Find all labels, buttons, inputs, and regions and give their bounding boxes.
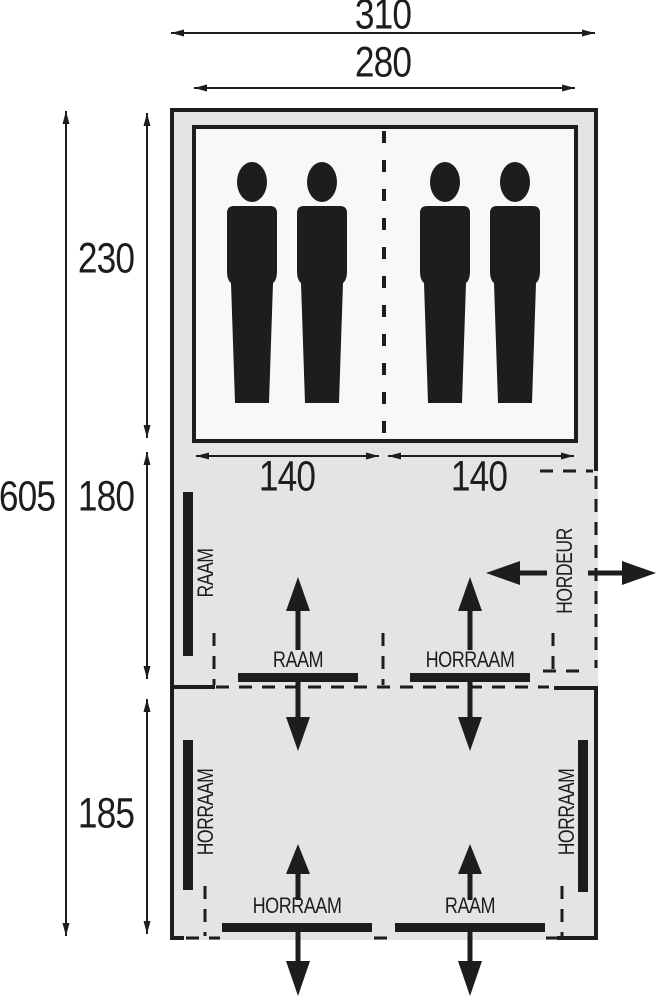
tent-floorplan-diagram: 310 280 605 230 180 185 140 140 RAAM HOR… [0,0,658,1000]
dimension-line-overall-depth [63,111,70,936]
arrow-down-bottom-left-icon [286,932,310,996]
label-mesh-window-left-wall: HORRAAM [195,769,217,856]
dim-label-front-depth: 185 [78,793,134,836]
dim-label-cabin-right-width: 140 [451,456,507,499]
window-bar-bottom-left [222,923,372,932]
door-arrow-out-icon [588,561,656,585]
label-mesh-window-mid: HORRAAM [426,649,515,671]
window-bar-left-wall-front [183,740,193,890]
window-bar-mid-left [238,673,358,682]
label-window-left-wall: RAAM [195,549,217,598]
window-bar-bottom-right [395,923,545,932]
dim-label-cabin-left-width: 140 [259,456,315,499]
label-window-mid: RAAM [273,649,323,671]
dim-label-living-depth: 180 [78,476,134,519]
dim-label-inner-width: 280 [355,42,411,85]
dim-label-cabin-depth: 230 [78,238,134,281]
label-mesh-window-right-wall: HORRAAM [556,769,578,856]
window-bar-right-wall-front [578,740,588,892]
dimension-line-front-depth [144,699,151,934]
dimension-line-cabin-depth [144,113,151,438]
window-bar-left-wall [183,492,193,656]
label-window-bottom: RAAM [445,895,495,917]
dim-label-overall-depth: 605 [0,476,55,519]
label-mesh-window-bottom: HORRAAM [253,895,342,917]
arrow-down-bottom-right-icon [458,932,482,996]
dim-label-overall-width: 310 [355,0,411,37]
window-bar-mid-right [410,673,530,682]
label-mesh-door: HORDEUR [554,528,576,614]
dimension-line-living-depth [144,452,151,679]
